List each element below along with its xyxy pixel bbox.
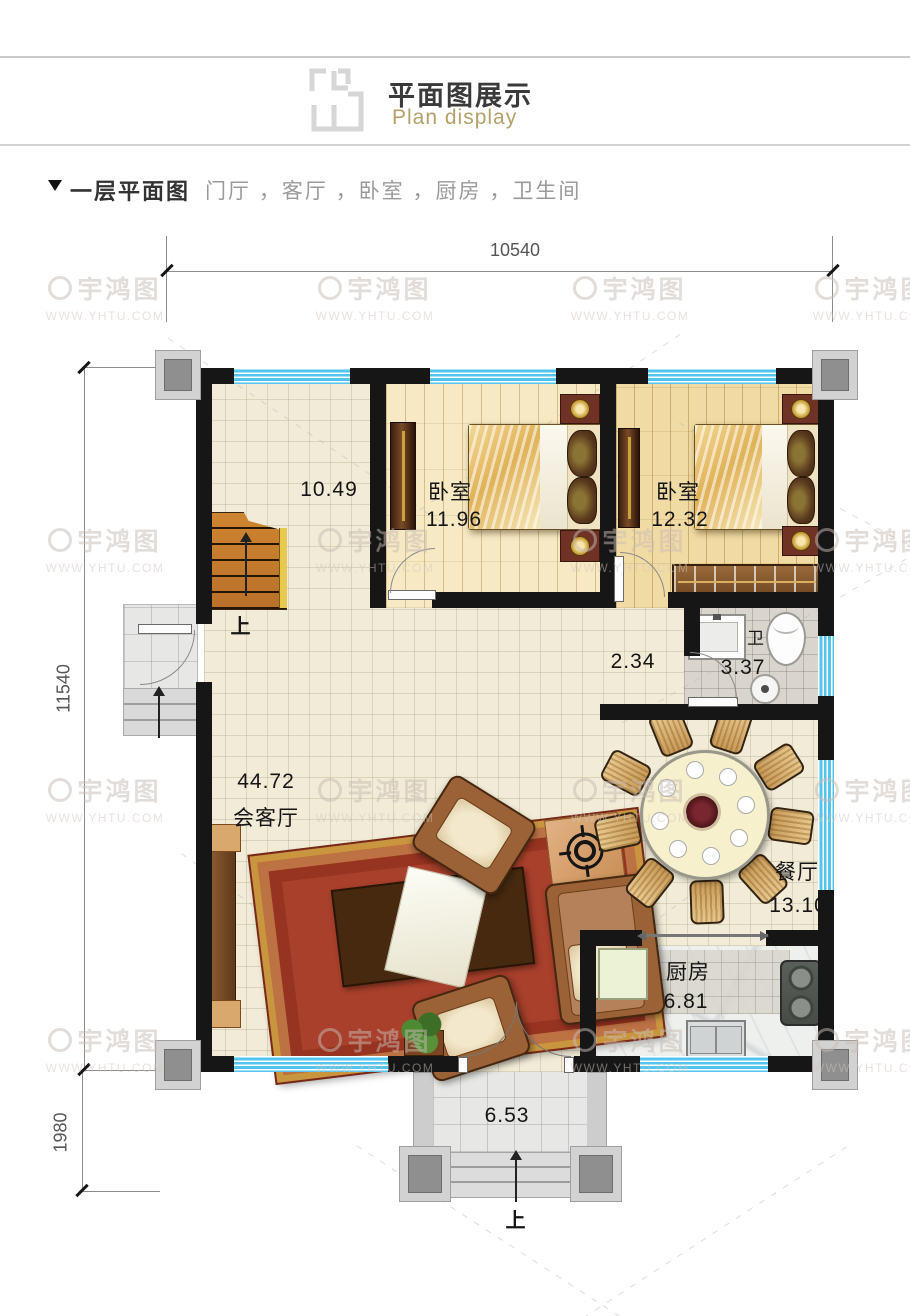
watermark: 宇鸿图WWW.YHTU.COM: [772, 270, 910, 323]
floor-plan: 上: [0, 0, 910, 1316]
entry-door-jamb: [458, 1057, 468, 1073]
table-centerpiece: [686, 796, 718, 828]
bedroom1-nightstand: [560, 394, 600, 424]
porch-up-arrow: [515, 1154, 517, 1202]
sliding-door-track: [640, 934, 768, 937]
watermark: 宇鸿图WWW.YHTU.COM: [5, 772, 205, 825]
gas-stove: [780, 960, 822, 1026]
yhtu-logo-icon: [48, 528, 72, 552]
wall-exterior-right: [818, 368, 834, 1072]
yhtu-logo-icon: [48, 778, 72, 802]
bathroom-area: 3.37: [712, 656, 774, 680]
sliding-door-arrow-left: [632, 931, 646, 941]
dim-ext-line: [166, 236, 167, 322]
dim-ext-line: [82, 1191, 160, 1192]
tv-cabinet: [210, 832, 236, 1020]
window-living: [234, 1056, 388, 1072]
kitchen-area: 6.81: [652, 990, 720, 1014]
bed-sheet-fold: [762, 425, 788, 529]
wall-bedroom2-bottom: [668, 592, 834, 608]
fridge: [598, 948, 648, 1000]
stairs-up-arrowhead: [240, 526, 252, 542]
floorplan-icon: [303, 63, 369, 137]
watermark: 宇鸿图WWW.YHTU.COM: [5, 270, 205, 323]
wall-hall-bedroom1: [370, 384, 386, 608]
dim-bottom-left-value: 1980: [51, 1088, 72, 1178]
kitchen-label: 厨房: [652, 956, 724, 986]
bed-pillow: [567, 430, 597, 477]
armchair-cushion: [434, 795, 514, 871]
yhtu-logo-icon: [48, 1028, 72, 1052]
dim-line-porch: [82, 1071, 83, 1192]
dining-chair: [689, 879, 725, 924]
bedroom2-area: 12.32: [640, 508, 720, 532]
place-setting: [658, 779, 676, 797]
bedroom1-label: 卧室: [414, 476, 486, 506]
bedroom2-wardrobe: [618, 428, 640, 528]
window-bedroom1: [430, 368, 556, 384]
porch-up-arrowhead: [510, 1144, 522, 1160]
dining-label: 餐厅: [764, 856, 830, 886]
place-setting: [651, 812, 669, 830]
wall-kitchen-top-right: [766, 930, 834, 946]
dim-left-value: 11540: [54, 639, 75, 739]
wall-exterior-left-lower: [196, 682, 212, 1072]
wall-bathroom-left: [684, 608, 700, 656]
corner-pillar-top-right: [812, 350, 858, 400]
corner-pillar-bottom-right: [812, 1040, 858, 1090]
porch-up-label: 上: [501, 1204, 531, 1233]
corridor-area: 2.34: [602, 650, 664, 674]
watermark: 宇鸿图WWW.YHTU.COM: [5, 522, 205, 575]
window-hall: [234, 368, 350, 384]
yhtu-logo-icon: [573, 276, 597, 300]
yhtu-logo-icon: [318, 276, 342, 300]
corner-pillar-bottom-left: [155, 1040, 201, 1090]
place-setting: [702, 847, 720, 865]
sliding-door-arrow-right: [760, 931, 774, 941]
bedroom1-wardrobe: [390, 422, 416, 530]
flower-plant: [396, 1010, 450, 1058]
wall-exterior-left-upper: [196, 368, 212, 624]
side-entry-up-arrowhead: [153, 680, 165, 696]
bed-sheet-fold: [540, 425, 567, 529]
place-setting: [686, 761, 704, 779]
bed-pillow: [787, 477, 815, 524]
dining-area: 13.10: [760, 894, 836, 918]
wall-bedroom1-bottom: [432, 592, 602, 608]
porch-pillar-left: [399, 1146, 451, 1202]
bathroom-label: 卫: [744, 624, 768, 649]
dim-ext-line: [84, 367, 156, 368]
wall-kitchen-left: [580, 946, 596, 1058]
watermark: 宇鸿图WWW.YHTU.COM: [275, 270, 475, 323]
place-setting: [669, 840, 687, 858]
bedroom1-area: 11.96: [414, 508, 494, 532]
window-bathroom: [818, 636, 834, 696]
page: 平面图展示 Plan display 一层平面图 门厅 ，客厅 ，卧室 ，厨房 …: [0, 0, 910, 1316]
yhtu-logo-icon: [48, 276, 72, 300]
porch-area: 6.53: [474, 1104, 540, 1128]
porch-pillar-right: [570, 1146, 622, 1202]
dim-ext-line: [832, 236, 833, 322]
living-label: 会客厅: [222, 802, 310, 832]
bedroom1-nightstand: [560, 530, 600, 562]
stairs-up-arrow: [245, 534, 247, 596]
window-kitchen: [640, 1056, 768, 1072]
corner-pillar-top-left: [155, 350, 201, 400]
bed-pillow: [787, 430, 815, 477]
bed-pillow: [567, 477, 597, 524]
hall-area: 10.49: [292, 478, 366, 502]
dining-chair: [767, 806, 815, 846]
staircase-rail: [279, 528, 287, 608]
dim-line-left: [84, 368, 85, 1071]
bedroom2-nightstand: [782, 526, 820, 556]
window-bedroom2: [648, 368, 776, 384]
stairs-up-label: 上: [226, 610, 256, 639]
dim-line-top: [166, 271, 833, 272]
yhtu-logo-icon: [815, 276, 839, 300]
entry-door-jamb: [564, 1057, 574, 1073]
side-entry-up-arrow: [158, 690, 160, 738]
bedroom2-label: 卧室: [642, 476, 714, 506]
dim-ext-line: [84, 1070, 156, 1071]
living-area: 44.72: [226, 770, 306, 794]
dim-top-value: 10540: [455, 240, 575, 261]
watermark: 宇鸿图WWW.YHTU.COM: [530, 270, 730, 323]
kitchen-sink: [686, 1020, 746, 1060]
